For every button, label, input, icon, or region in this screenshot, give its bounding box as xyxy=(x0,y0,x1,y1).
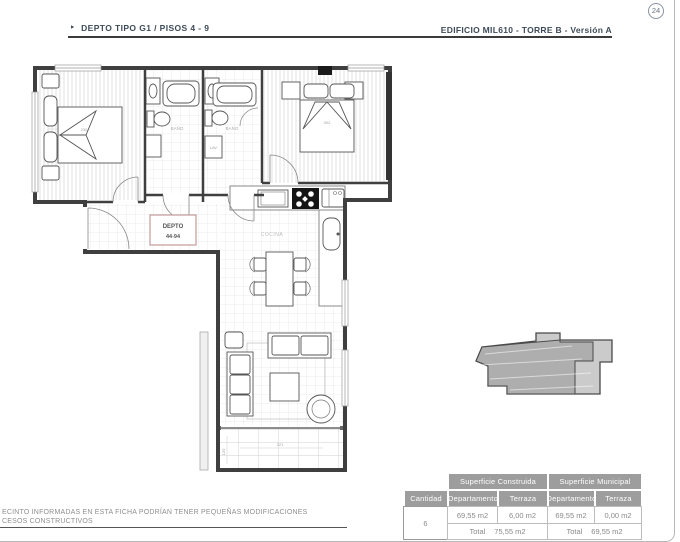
nightstand-symbol xyxy=(42,74,59,88)
municipal-total: Total 69,55 m2 xyxy=(547,523,642,540)
table-spacer xyxy=(404,473,448,490)
footprint-highlight xyxy=(476,340,593,394)
col-departamento-municipal: Departamento xyxy=(548,490,595,507)
unit-number-line1: DEPTO xyxy=(163,224,184,230)
footer-rule xyxy=(0,527,347,528)
municipal-total-value: 69,55 m2 xyxy=(591,527,622,536)
pillow-symbol xyxy=(44,132,57,162)
spec-sheet: ‣ DEPTO TIPO G1 / PISOS 4 - 9 EDIFICIO M… xyxy=(0,0,680,542)
dim-terrace-d: 120 xyxy=(221,448,226,455)
col-group-construida: Superficie Construida xyxy=(448,473,548,490)
unit-number-line2: 44-94 xyxy=(166,234,181,240)
chair-symbol xyxy=(254,258,266,271)
col-terraza-municipal: Terraza xyxy=(595,490,642,507)
triangle-bullet-icon: ‣ xyxy=(70,24,75,32)
bathtub-inner xyxy=(167,84,195,103)
col-cantidad: Cantidad xyxy=(404,490,448,507)
pillow-symbol xyxy=(304,84,328,98)
coffee-table-symbol xyxy=(270,373,299,401)
floor-plan: BAÑO BAÑO LAV COCINA 230 302 321 120 DEP… xyxy=(18,52,438,477)
laundry-label: LAV xyxy=(210,146,217,150)
chair-symbol xyxy=(294,258,306,271)
construida-terraza-value: 6,00 m2 xyxy=(497,506,548,524)
unit-type-title-text: DEPTO TIPO G1 / PISOS 4 - 9 xyxy=(81,23,209,33)
building-footprint xyxy=(460,324,630,409)
total-label: Total xyxy=(566,527,582,536)
chair-symbol xyxy=(254,282,266,295)
nightstand-symbol xyxy=(42,166,59,180)
chair-symbol xyxy=(294,282,306,295)
construida-total: Total 75,55 m2 xyxy=(447,523,548,540)
surface-summary-table: Superficie Construida Superficie Municip… xyxy=(404,473,642,540)
dining-table-symbol xyxy=(266,252,293,306)
bath1-label: BAÑO xyxy=(171,125,184,131)
round-chair-symbol xyxy=(307,395,335,423)
duct-shaft xyxy=(318,66,332,75)
shear-wall xyxy=(386,72,392,180)
kitchen-label: COCINA xyxy=(261,232,284,238)
dim-bed1: 230 xyxy=(81,127,88,132)
entry-opening xyxy=(82,207,88,249)
terrace-side-screen xyxy=(200,332,208,470)
closet-symbol xyxy=(282,82,300,99)
page-number-badge: 24 xyxy=(648,3,664,19)
dim-terrace-w: 321 xyxy=(277,442,284,447)
dim-bed2: 302 xyxy=(324,120,331,125)
building-title: EDIFICIO MIL610 - TORRE B - Versión A xyxy=(441,25,612,35)
header-rule xyxy=(68,36,612,38)
faucet-dot xyxy=(337,233,340,236)
construida-total-value: 75,55 m2 xyxy=(494,527,525,536)
bathtub-inner xyxy=(217,86,252,103)
unit-number-box: DEPTO 44-94 xyxy=(150,215,196,245)
disclaimer-line-1: ECINTO INFORMADAS EN ESTA FICHA PODRÍAN … xyxy=(2,508,308,517)
sink-symbol xyxy=(149,84,157,98)
sofa-left xyxy=(227,352,253,416)
bed-symbol xyxy=(300,100,354,152)
side-table-symbol xyxy=(225,332,243,348)
sofa-top xyxy=(268,333,331,358)
municipal-departamento-value: 69,55 m2 xyxy=(547,506,595,524)
construida-departamento-value: 69,55 m2 xyxy=(447,506,498,524)
col-group-municipal: Superficie Municipal xyxy=(548,473,642,490)
municipal-terraza-value: 0,00 m2 xyxy=(594,506,642,524)
disclaimer-note: ECINTO INFORMADAS EN ESTA FICHA PODRÍAN … xyxy=(2,508,308,526)
pillow-symbol xyxy=(44,96,57,126)
toilet-tank xyxy=(147,111,154,127)
cantidad-value: 6 xyxy=(403,506,448,540)
total-label: Total xyxy=(469,527,485,536)
toilet-tank xyxy=(205,110,212,126)
pillow-symbol xyxy=(330,84,354,98)
toilet-symbol xyxy=(212,111,228,125)
col-terraza-construida: Terraza xyxy=(498,490,548,507)
col-departamento-construida: Departamento xyxy=(448,490,498,507)
disclaimer-line-2: CESOS CONSTRUCTIVOS xyxy=(2,517,308,526)
unit-type-title: ‣ DEPTO TIPO G1 / PISOS 4 - 9 xyxy=(70,23,209,33)
cabinet-symbol xyxy=(145,135,161,157)
oven-inner xyxy=(261,192,285,205)
bath2-label: BAÑO xyxy=(226,125,239,131)
toilet-symbol xyxy=(154,112,170,126)
